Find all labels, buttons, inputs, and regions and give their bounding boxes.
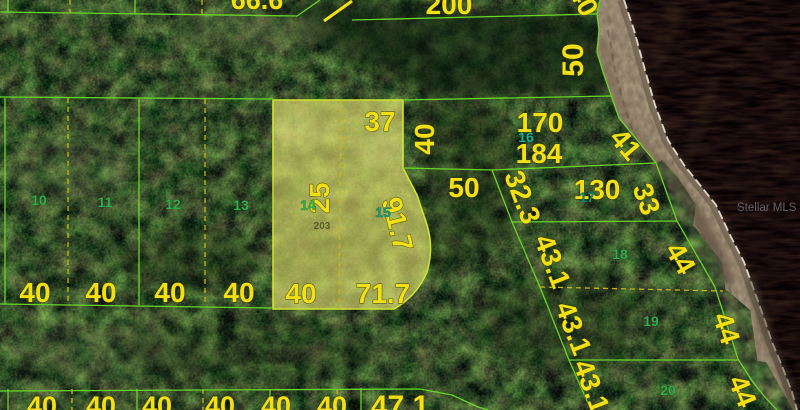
svg-text:13: 13 — [233, 197, 249, 213]
svg-text:Stellar MLS: Stellar MLS — [737, 202, 797, 214]
svg-text:50: 50 — [557, 43, 590, 76]
svg-text:16: 16 — [518, 129, 534, 145]
svg-text:40: 40 — [317, 391, 347, 410]
svg-text:17: 17 — [579, 189, 595, 205]
svg-text:200: 200 — [426, 0, 473, 20]
svg-text:10: 10 — [31, 192, 47, 208]
svg-text:40: 40 — [223, 277, 254, 308]
svg-text:40: 40 — [285, 278, 316, 309]
svg-text:20: 20 — [660, 382, 676, 398]
svg-text:14: 14 — [300, 197, 316, 213]
svg-text:40: 40 — [85, 277, 116, 308]
svg-text:40: 40 — [86, 391, 116, 410]
svg-text:40: 40 — [27, 391, 57, 410]
svg-text:37: 37 — [364, 106, 395, 137]
svg-text:66.6: 66.6 — [231, 0, 284, 15]
svg-text:40: 40 — [142, 391, 172, 410]
svg-text:203: 203 — [314, 221, 331, 232]
svg-text:19: 19 — [643, 313, 659, 329]
svg-text:15: 15 — [375, 204, 391, 220]
svg-text:40: 40 — [409, 123, 440, 154]
svg-text:18: 18 — [612, 246, 628, 262]
svg-text:71.7: 71.7 — [356, 278, 411, 309]
svg-text:40: 40 — [19, 277, 50, 308]
svg-text:11: 11 — [98, 194, 113, 210]
svg-text:50: 50 — [448, 172, 479, 203]
svg-text:40: 40 — [205, 391, 235, 410]
svg-text:40: 40 — [261, 391, 291, 410]
svg-text:12: 12 — [165, 196, 181, 212]
svg-text:47.1: 47.1 — [371, 390, 429, 410]
svg-text:40: 40 — [154, 277, 185, 308]
